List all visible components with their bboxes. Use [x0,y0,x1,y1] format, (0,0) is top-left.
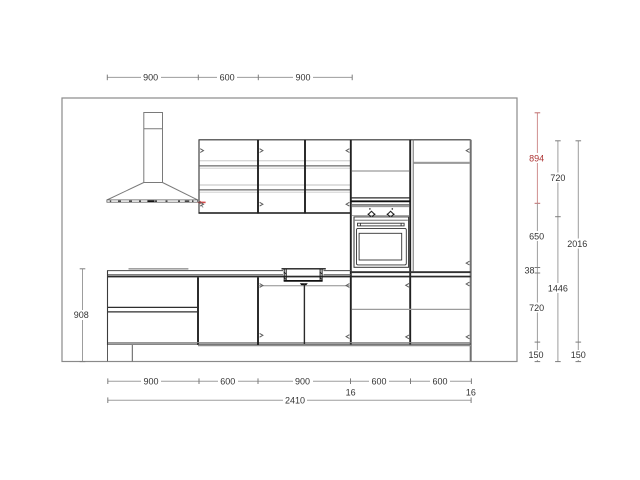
svg-text:600: 600 [220,376,235,386]
svg-text:16: 16 [346,387,356,397]
svg-text:600: 600 [371,376,386,386]
svg-text:900: 900 [143,73,158,83]
svg-text:600: 600 [432,376,447,386]
svg-text:1446: 1446 [548,283,568,293]
svg-text:2016: 2016 [567,239,587,249]
svg-text:600: 600 [220,73,235,83]
svg-text:900: 900 [295,73,310,83]
svg-text:720: 720 [550,173,565,183]
svg-text:900: 900 [143,376,158,386]
svg-text:16: 16 [466,387,476,397]
svg-text:650: 650 [529,231,544,241]
svg-text:900: 900 [295,376,310,386]
svg-text:894: 894 [529,153,544,163]
svg-text:150: 150 [528,350,543,360]
svg-text:720: 720 [529,303,544,313]
svg-text:38: 38 [524,266,534,276]
svg-text:2410: 2410 [285,395,305,405]
svg-text:908: 908 [74,310,89,320]
svg-text:150: 150 [571,350,586,360]
